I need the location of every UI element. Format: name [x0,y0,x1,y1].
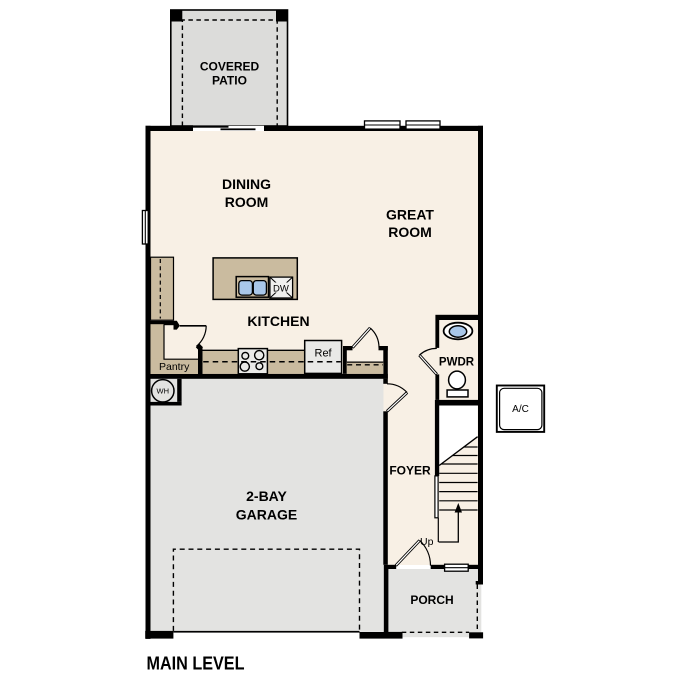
svg-text:2-BAY: 2-BAY [246,488,287,504]
svg-text:COVERED: COVERED [200,60,260,74]
svg-text:Ref: Ref [315,348,333,360]
svg-text:KITCHEN: KITCHEN [247,313,309,329]
svg-text:GARAGE: GARAGE [236,507,297,523]
svg-text:A/C: A/C [512,404,529,415]
svg-text:Up: Up [420,536,434,548]
svg-text:FOYER: FOYER [389,464,431,478]
svg-text:ROOM: ROOM [388,224,432,240]
svg-text:GREAT: GREAT [386,207,434,223]
svg-text:DW: DW [273,284,289,295]
svg-text:MAIN LEVEL: MAIN LEVEL [147,654,245,674]
svg-text:PORCH: PORCH [410,593,453,607]
svg-text:WH: WH [157,387,170,396]
svg-text:DINING: DINING [222,176,271,192]
svg-text:ROOM: ROOM [225,194,269,210]
svg-text:PATIO: PATIO [212,74,247,88]
svg-text:Pantry: Pantry [159,361,190,373]
svg-text:PWDR: PWDR [439,357,475,369]
